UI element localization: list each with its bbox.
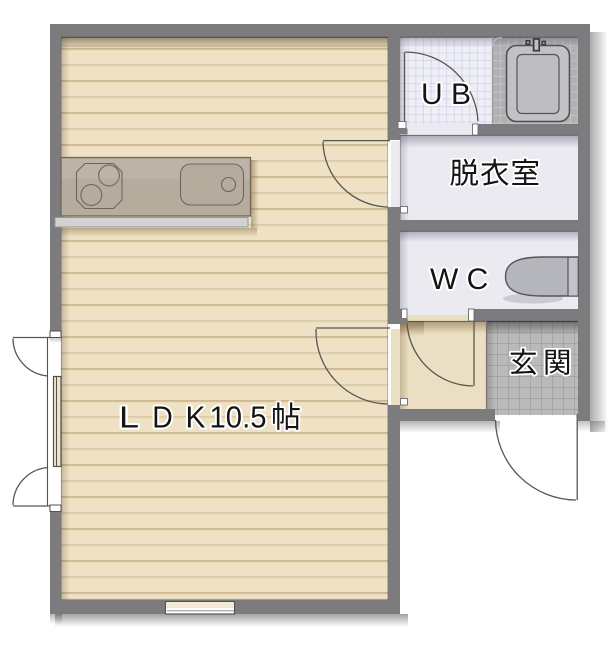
svg-text:K: K xyxy=(186,401,206,435)
svg-text:D: D xyxy=(152,401,173,435)
svg-text:W C: W C xyxy=(430,263,488,296)
svg-text:10.5: 10.5 xyxy=(210,401,267,435)
svg-text:L: L xyxy=(119,401,139,435)
svg-text:U B: U B xyxy=(421,78,471,111)
